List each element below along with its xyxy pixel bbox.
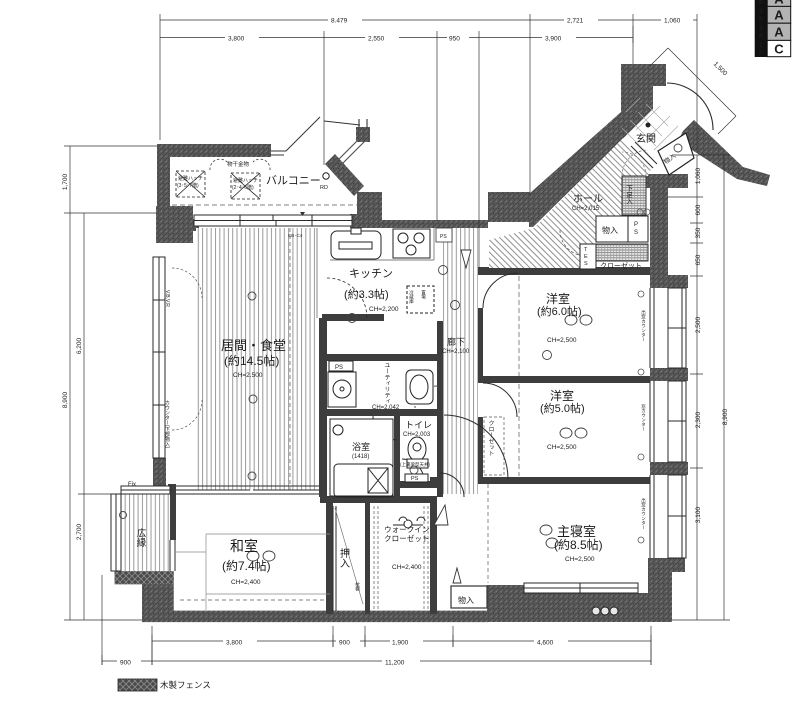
svg-text:F: F [759,17,764,24]
svg-text:PS: PS [440,234,447,240]
svg-text:居間・食堂: 居間・食堂 [221,338,286,353]
svg-text:8.479: 8.479 [331,18,348,25]
svg-text:(約14.5帖): (約14.5帖) [224,353,279,368]
svg-text:(約5.0帖): (約5.0帖) [540,401,585,415]
svg-text:F: F [759,0,764,7]
svg-text:出窓カウンター: 出窓カウンター [641,309,647,342]
svg-text:(約7.4帖): (約7.4帖) [222,558,271,573]
svg-text:A: A [774,0,784,7]
svg-text:650: 650 [695,254,702,265]
svg-text:900: 900 [339,640,350,647]
svg-text:(約6.0帖): (約6.0帖) [537,304,582,318]
svg-text:3,900: 3,900 [545,36,562,43]
svg-text:冷蔵庫: 冷蔵庫 [409,289,415,305]
svg-text:主寝室: 主寝室 [557,524,596,539]
svg-text:トイレ: トイレ [405,420,432,430]
svg-text:CH=2,042: CH=2,042 [372,405,400,411]
svg-text:CH=2,400: CH=2,400 [392,564,422,571]
svg-text:クローゼット: クローゼット [487,420,494,456]
svg-text:クローゼット: クローゼット [600,261,642,270]
svg-text:8,900: 8,900 [62,391,69,408]
svg-text:玄関: 玄関 [636,132,656,145]
svg-text:1,060: 1,060 [695,167,702,184]
svg-text:CH=2,400: CH=2,400 [231,579,261,586]
svg-text:木製フェンス: 木製フェンス [160,680,211,690]
svg-text:和室: 和室 [230,538,258,554]
svg-text:950: 950 [449,36,460,43]
svg-text:1: 1 [759,43,763,50]
svg-text:物入: 物入 [458,595,474,605]
svg-text:CH=2,200: CH=2,200 [369,306,399,313]
svg-text:3: 3 [759,9,763,16]
svg-text:枕棚: 枕棚 [355,581,361,593]
svg-text:(約3.3帖): (約3.3帖) [344,287,389,301]
svg-text:F: F [759,34,764,41]
svg-text:F: F [759,51,764,58]
svg-text:2,300: 2,300 [695,411,702,428]
svg-text:CH=2,500: CH=2,500 [565,556,595,563]
svg-text:1,700: 1,700 [62,173,69,190]
svg-text:RD: RD [320,185,328,191]
svg-text:避難ハッチ: 避難ハッチ [178,175,203,182]
svg-text:ユーティリティ: ユーティリティ [383,362,390,404]
svg-text:廊下: 廊下 [447,336,465,347]
svg-text:3,100: 3,100 [695,506,702,523]
svg-text:ホール: ホール [573,193,603,205]
svg-text:バルコニー: バルコニー [266,174,321,187]
svg-text:1,900: 1,900 [392,640,409,647]
svg-text:CH=2,003: CH=2,003 [403,432,431,438]
svg-text:(2･4･6階): (2･4･6階) [232,184,254,191]
svg-text:避難ハッチ: 避難ハッチ [233,177,258,184]
svg-text:CH=2,500: CH=2,500 [547,337,577,344]
svg-text:PS: PS [411,476,419,482]
svg-text:CH=2,100: CH=2,100 [442,349,470,355]
svg-text:カウンター(下部物入): カウンター(下部物入) [164,400,170,449]
svg-text:11,200: 11,200 [385,660,405,667]
svg-text:3,800: 3,800 [228,36,245,43]
svg-text:物入: 物入 [602,225,618,235]
svg-text:C: C [774,42,784,57]
svg-text:2,721: 2,721 [567,18,584,25]
svg-text:V.B,V.R: V.B,V.R [164,290,170,307]
svg-text:6,200: 6,200 [76,337,83,354]
svg-text:(約8.5帖): (約8.5帖) [554,537,603,552]
svg-text:350: 350 [695,227,702,238]
svg-text:(1418): (1418) [352,454,369,460]
svg-text:1,060: 1,060 [664,18,681,25]
svg-text:8,900: 8,900 [722,408,729,425]
svg-text:S: S [634,230,638,236]
svg-text:A: A [774,8,784,23]
svg-text:広縁: 広縁 [135,527,147,547]
svg-text:浴室: 浴室 [352,441,370,452]
svg-text:3,800: 3,800 [226,640,243,647]
svg-text:押入: 押入 [338,547,350,568]
svg-text:4,600: 4,600 [537,640,554,647]
svg-text:CH=2,015: CH=2,015 [572,206,600,212]
svg-text:E: E [584,254,588,260]
svg-text:Fix: Fix [128,482,136,488]
svg-text:出窓カウンター: 出窓カウンター [641,497,647,530]
svg-text:CH=2,500: CH=2,500 [547,444,577,451]
svg-text:S: S [584,261,588,267]
svg-text:(上裏梁型天井): (上裏梁型天井) [400,461,430,468]
svg-text:窓カウンター: 窓カウンター [641,403,647,431]
svg-text:PS: PS [335,365,343,371]
svg-text:置場: 置場 [421,290,427,301]
svg-text:洋室: 洋室 [550,388,574,403]
svg-text:2: 2 [759,26,763,33]
svg-text:900: 900 [120,660,131,667]
svg-text:ウォークイン: ウォークイン [384,525,430,534]
svg-text:2,550: 2,550 [368,36,385,43]
svg-text:物干金物: 物干金物 [227,160,250,168]
svg-text:CH=2.500: CH=2.500 [233,372,263,379]
svg-text:クローゼット: クローゼット [384,533,430,543]
svg-text:600: 600 [695,204,702,215]
svg-text:2,500: 2,500 [695,316,702,333]
svg-text:A: A [774,25,784,40]
svg-text:2,700: 2,700 [76,523,83,540]
svg-text:CB･C4: CB･C4 [288,233,303,238]
svg-text:P: P [634,222,638,228]
svg-text:洋室: 洋室 [546,291,570,306]
svg-text:(3･5･7階): (3･5･7階) [177,182,199,189]
svg-text:キッチン: キッチン [349,267,393,280]
